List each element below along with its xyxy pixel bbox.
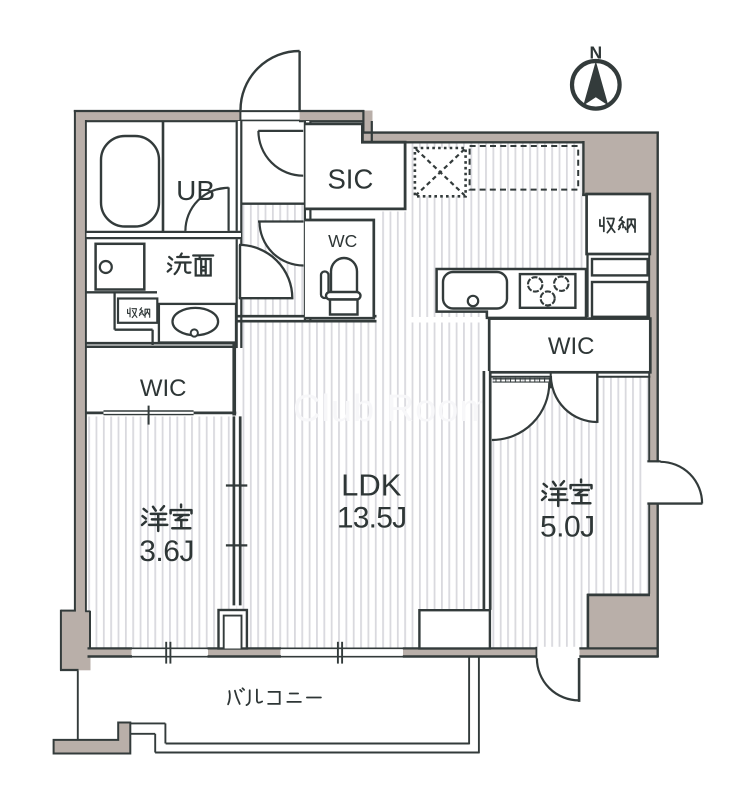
svg-text:13.5J: 13.5J <box>337 502 406 535</box>
svg-text:WIC: WIC <box>548 333 595 360</box>
svg-text:WIC: WIC <box>140 375 187 402</box>
svg-text:N: N <box>589 43 602 63</box>
svg-text:LDK: LDK <box>341 467 402 502</box>
svg-text:WC: WC <box>328 231 357 251</box>
svg-text:5.0J: 5.0J <box>540 511 595 544</box>
svg-text:Club Room: Club Room <box>293 388 492 430</box>
svg-text:3.6J: 3.6J <box>139 535 194 568</box>
svg-text:SIC: SIC <box>327 164 373 195</box>
svg-text:UB: UB <box>176 175 215 206</box>
